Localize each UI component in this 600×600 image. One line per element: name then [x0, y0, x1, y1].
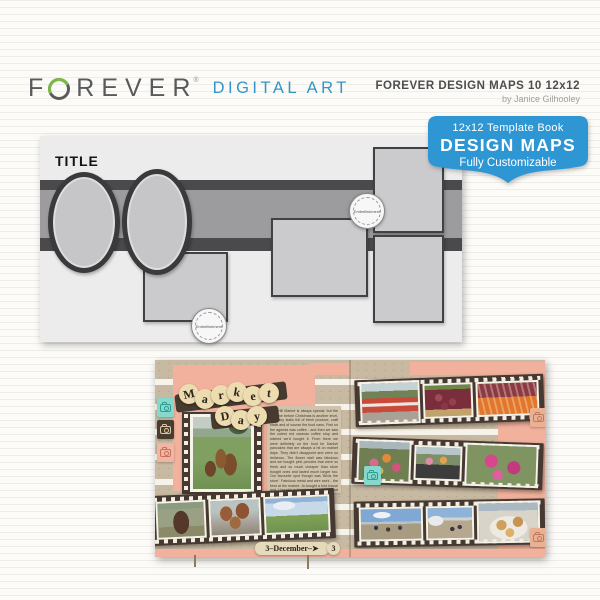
camera-stamp-brown: [157, 420, 174, 439]
camera-icon: [533, 414, 544, 422]
photo-red-caravan: [359, 380, 420, 425]
scrapbook-spread-preview: Red Hill Market is always special, but t…: [155, 360, 545, 557]
scrapbook-left-page: Red Hill Market is always special, but t…: [155, 360, 350, 557]
camera-icon: [160, 404, 171, 412]
template-map-preview: TITLE Embellishment Embellishment: [40, 136, 462, 342]
camera-stamp-teal: [157, 398, 174, 417]
photo-market-field: [263, 494, 331, 535]
badge-text: 12x12 Template Book DESIGN MAPS Fully Cu…: [427, 115, 589, 189]
embellishment-stamp-2: Embellishment: [349, 193, 385, 229]
badge-line-2: DESIGN MAPS: [427, 135, 589, 156]
photo-placeholder-ellipse-1: [48, 172, 120, 273]
filmstrip-top-right: [354, 374, 545, 428]
digital-art-wordmark: DIGITAL ART: [213, 79, 350, 98]
photo-red-onions: [422, 382, 473, 419]
camera-icon: [160, 449, 171, 457]
forever-logo: F REVER ® DIGITAL ART: [28, 74, 350, 103]
camera-stamp-pink: [157, 443, 174, 462]
camera-icon: [160, 426, 171, 434]
photo-flower-buckets: [413, 445, 462, 482]
badge-line-3: Fully Customizable: [427, 157, 589, 169]
embellishment-label: Embellishment: [196, 324, 222, 329]
filmstrip-bottom-left: [155, 488, 336, 546]
product-title: FOREVER DESIGN MAPS 10 12x12: [376, 80, 580, 92]
logo-letters-rest: REVER: [76, 74, 197, 103]
tag-string: [194, 555, 196, 567]
product-image: F REVER ® DIGITAL ART FOREVER DESIGN MAP…: [0, 0, 600, 600]
photo-placeholder-ellipse-2: [122, 169, 192, 275]
date-number-tag: 3: [327, 542, 340, 555]
photo-birdhouse-stall: [208, 497, 262, 537]
photo-market-crowd: [359, 506, 424, 541]
filmstrip-photos: [356, 443, 538, 484]
filmstrip-photos: [359, 380, 539, 421]
embellishment-label: Embellishment: [354, 209, 380, 214]
logo-o-swoosh-icon: [48, 78, 70, 100]
filmstrip-photos: [359, 504, 541, 541]
photo-placeholder-wide-center: [271, 218, 368, 297]
trademark-symbol: ®: [193, 77, 198, 84]
product-info: FOREVER DESIGN MAPS 10 12x12 by Janice G…: [376, 80, 580, 104]
photo-pink-flowers: [464, 443, 538, 489]
camera-stamp-salmon: [530, 528, 545, 547]
camera-icon: [533, 534, 544, 542]
photo-market-walkway: [426, 506, 475, 541]
photo-market-sign: [155, 500, 207, 540]
camera-stamp-teal: [364, 466, 381, 485]
product-byline: by Janice Gilhooley: [376, 94, 580, 104]
filmstrip-bottom-right: [354, 498, 545, 547]
filmstrip-photos: [155, 494, 330, 540]
date-label-tag: 3–December–➤: [255, 542, 329, 555]
badge-line-1: 12x12 Template Book: [427, 122, 589, 134]
template-title-placeholder: TITLE: [55, 153, 99, 169]
salmon-paper-strip: [410, 362, 498, 375]
tag-string: [307, 555, 309, 569]
camera-stamp-salmon: [530, 408, 545, 427]
salmon-paper-strip: [310, 363, 350, 375]
camera-icon: [367, 472, 378, 480]
embellishment-stamp-1: Embellishment: [191, 308, 227, 344]
page-seam: [349, 360, 351, 557]
template-book-badge: 12x12 Template Book DESIGN MAPS Fully Cu…: [427, 115, 589, 189]
scrapbook-right-page: [350, 360, 545, 557]
photo-placeholder-tall-bottom-right: [373, 235, 444, 323]
